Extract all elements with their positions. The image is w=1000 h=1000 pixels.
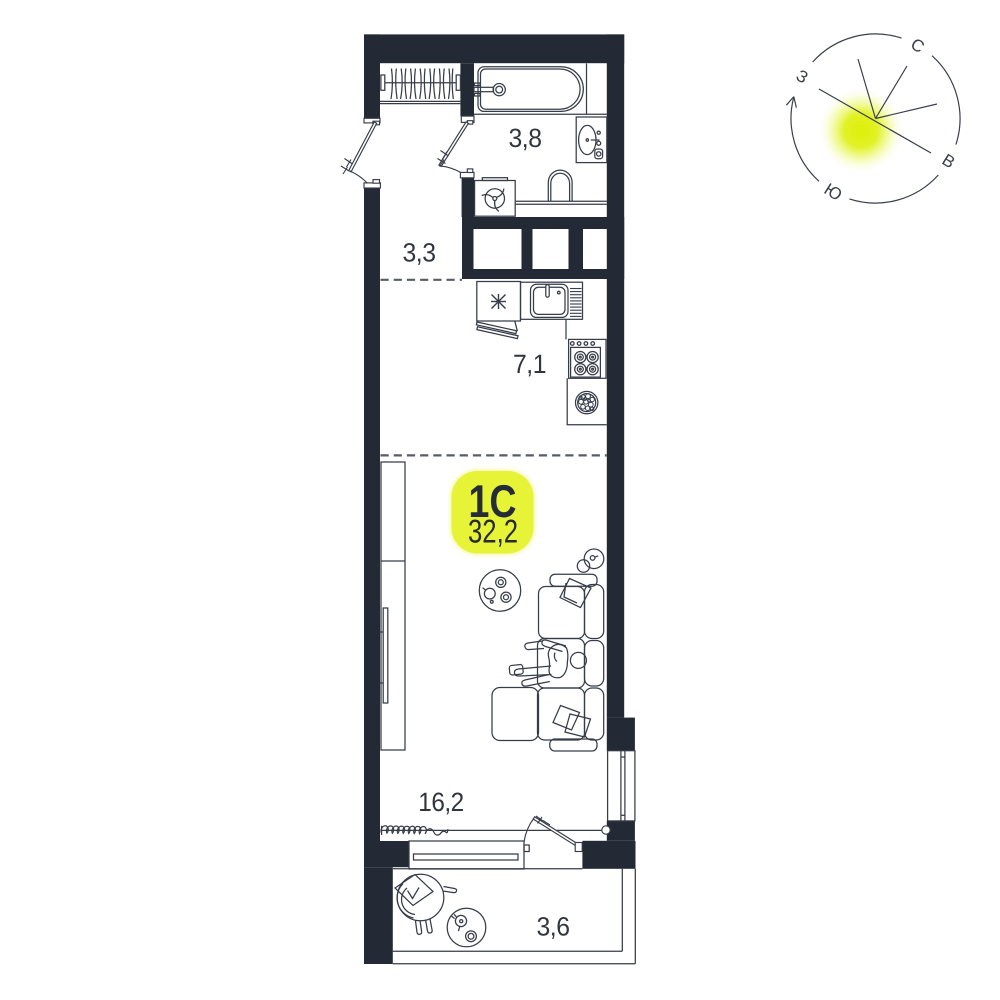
svg-text:16,2: 16,2 <box>418 787 464 817</box>
svg-text:7,1: 7,1 <box>513 349 546 379</box>
svg-text:3,6: 3,6 <box>537 911 570 941</box>
svg-text:3,8: 3,8 <box>509 123 542 153</box>
svg-text:32,2: 32,2 <box>468 513 518 550</box>
svg-text:3,3: 3,3 <box>403 238 436 268</box>
